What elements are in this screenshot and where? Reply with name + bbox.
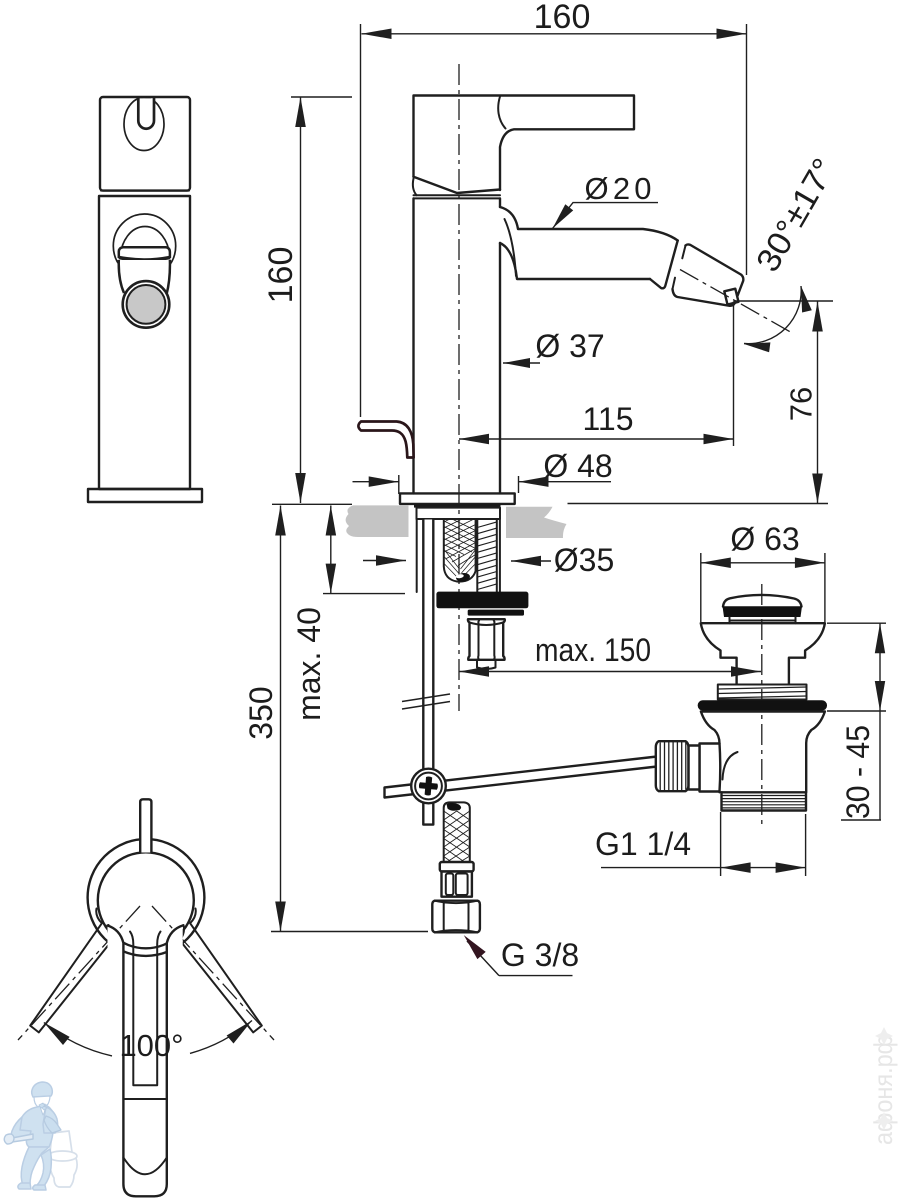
svg-text:160: 160 bbox=[534, 0, 591, 36]
svg-text:Ø 48: Ø 48 bbox=[543, 448, 612, 484]
svg-text:max. 40: max. 40 bbox=[291, 607, 327, 721]
svg-text:G 3/8: G 3/8 bbox=[501, 937, 579, 973]
svg-text:115: 115 bbox=[582, 401, 633, 437]
svg-text:350: 350 bbox=[243, 686, 279, 739]
svg-text:max. 150: max. 150 bbox=[535, 632, 651, 668]
svg-text:160: 160 bbox=[262, 247, 300, 304]
svg-text:Ø 63: Ø 63 bbox=[730, 521, 799, 557]
svg-text:афоня.рф: афоня.рф bbox=[868, 1035, 898, 1145]
svg-text:Ø35: Ø35 bbox=[554, 542, 614, 578]
svg-text:G1 1/4: G1 1/4 bbox=[595, 826, 691, 862]
svg-text:Ø 37: Ø 37 bbox=[535, 328, 604, 364]
svg-text:Ø20: Ø20 bbox=[585, 171, 652, 206]
svg-text:76: 76 bbox=[784, 387, 819, 421]
svg-text:100°: 100° bbox=[119, 1028, 183, 1063]
svg-text:30 - 45: 30 - 45 bbox=[840, 725, 876, 819]
